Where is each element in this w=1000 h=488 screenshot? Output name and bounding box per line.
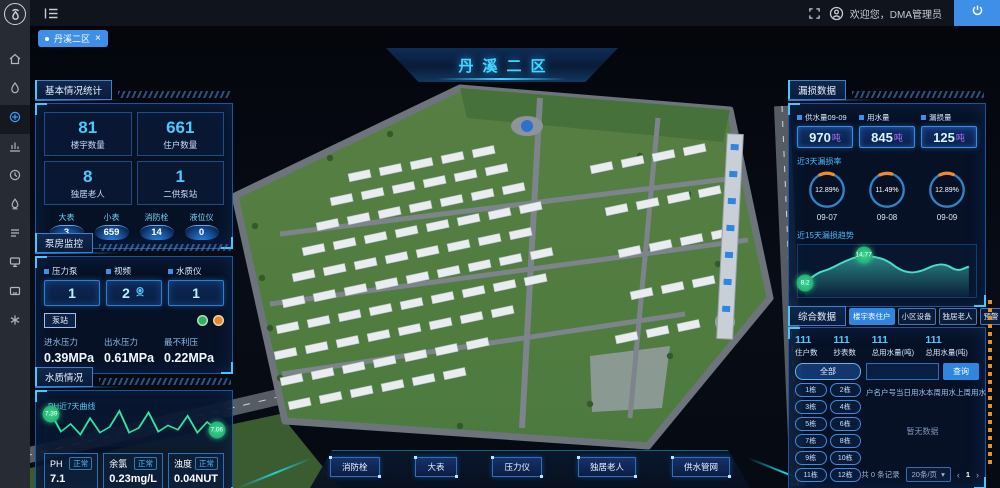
- page-tab[interactable]: 丹溪二区 ×: [38, 30, 108, 47]
- search-input[interactable]: [866, 363, 939, 380]
- sidebar: [0, 0, 30, 488]
- sidebar-item-quality[interactable]: [0, 192, 30, 221]
- record-count: 共 0 条记录: [861, 469, 899, 480]
- leak-rate-gauge: 11.49% 09-08: [857, 169, 917, 222]
- bullet-icon: [797, 115, 802, 120]
- sidebar-item-monitor[interactable]: [0, 250, 30, 279]
- building-button[interactable]: 7栋: [795, 434, 827, 448]
- panel-title: 基本情况统计: [35, 80, 112, 100]
- camera-icon[interactable]: [134, 285, 146, 301]
- bullet-icon: [168, 269, 173, 274]
- scene-3d-viewport[interactable]: 丹溪二区 × 丹溪二区 基本情况统计 81 楼宇数量 661: [30, 26, 1000, 488]
- tab-building-households[interactable]: 楼宇表住户: [849, 308, 895, 325]
- stat-buildings: 81 楼宇数量: [44, 112, 132, 156]
- query-button[interactable]: 查询: [943, 363, 979, 380]
- building-button[interactable]: 3栋: [795, 400, 827, 414]
- ph-marker: 7.06: [208, 421, 225, 438]
- quality-icon: [8, 197, 22, 216]
- hatch-decoration: [118, 91, 231, 98]
- fullscreen-icon[interactable]: [804, 2, 826, 24]
- sidebar-item-tools[interactable]: [0, 308, 30, 337]
- monitor-icon: [8, 255, 22, 274]
- sidebar-item-dashboard[interactable]: [0, 105, 30, 134]
- reading-chlorine: 余氯正常 0.23mg/L: [103, 453, 163, 488]
- station-badge[interactable]: 泵站: [44, 313, 76, 328]
- stat-households: 661 住户数量: [137, 112, 225, 156]
- ph-marker: 7.39: [43, 405, 60, 422]
- supply-volume: 供水量09-09 970吨: [797, 112, 853, 148]
- stat-pump-stations: 1 二供泵站: [137, 161, 225, 205]
- pressure-layer-button[interactable]: 压力仪: [492, 457, 542, 477]
- comp-stat-total-usage-2: 111 总用水量(吨): [925, 334, 979, 358]
- empty-table-text: 暂无数据: [866, 398, 979, 464]
- bullet-icon: [106, 269, 111, 274]
- panel-title: 泵房监控: [35, 233, 93, 253]
- building-button[interactable]: 10栋: [830, 451, 862, 465]
- elderly-layer-button[interactable]: 独居老人: [578, 457, 636, 477]
- building-button[interactable]: 9栋: [795, 451, 827, 465]
- sidebar-item-home[interactable]: [0, 47, 30, 76]
- panel-title: 综合数据: [788, 306, 846, 326]
- panel-comprehensive-data: 综合数据 楼宇表住户 小区设备 独居老人 预警 111 住户数 111 抄表数: [788, 308, 986, 488]
- leak-rate-gauge: 12.89% 09-09: [917, 169, 977, 222]
- sidebar-item-list[interactable]: [0, 221, 30, 250]
- page-size-select[interactable]: 20条/页 ▾: [906, 467, 951, 482]
- caret-down-icon: ▾: [941, 470, 945, 479]
- comp-stat-households: 111 住户数: [795, 334, 833, 358]
- tab-label: 丹溪二区: [54, 32, 90, 45]
- chart-icon: [8, 139, 22, 158]
- large-meter-layer-button[interactable]: 大表: [415, 457, 456, 477]
- bullet-icon: [44, 269, 49, 274]
- next-page-button[interactable]: ›: [976, 470, 979, 480]
- ph-line-chart: PH近7天曲线 7.39 7.06: [44, 399, 224, 447]
- panel-water-quality: 水质情况 PH近7天曲线 7.39 7.06 PH正常 7.1: [35, 369, 233, 488]
- tab-elderly[interactable]: 独居老人: [939, 308, 977, 325]
- brand-water-logo: [4, 3, 26, 25]
- history-icon: [8, 168, 22, 187]
- pipeline-layer-button[interactable]: 供水管网: [672, 457, 730, 477]
- panel-basic-statistics: 基本情况统计 81 楼宇数量 661 住户数量 8 独居老人: [35, 82, 233, 249]
- building-button[interactable]: 2栋: [830, 383, 862, 397]
- device-pressure-pump: 压力泵 1: [44, 265, 100, 306]
- reading-turbidity: 浊度正常 0.04NUT: [168, 453, 224, 488]
- bullet-icon: [921, 115, 926, 120]
- sidebar-item-chart[interactable]: [0, 134, 30, 163]
- leak-trend-chart: 8.2 14.77: [797, 244, 977, 298]
- scrollbar[interactable]: [988, 300, 992, 465]
- filter-all-button[interactable]: 全部: [795, 363, 861, 380]
- panel-title: 水质情况: [35, 367, 93, 387]
- building-button[interactable]: 6栋: [830, 417, 862, 431]
- device-video: 视频 2: [106, 265, 162, 306]
- user-avatar-icon[interactable]: [826, 2, 848, 24]
- leak-volume: 漏损量 125吨: [921, 112, 977, 148]
- panel-title: 漏损数据: [788, 80, 846, 100]
- leak-rate-gauge: 12.89% 09-07: [797, 169, 857, 222]
- building-button[interactable]: 4栋: [830, 400, 862, 414]
- sidebar-item-history[interactable]: [0, 163, 30, 192]
- table-header-row: 户名 户号 当日用水 本周用水 上周用水: [866, 387, 979, 398]
- power-icon: [971, 4, 984, 22]
- top-bar: 欢迎您，DMA管理员: [30, 0, 1000, 26]
- welcome-text: 欢迎您，DMA管理员: [850, 6, 942, 21]
- locate-green-icon[interactable]: [197, 315, 208, 326]
- comp-stat-meters: 111 抄表数: [833, 334, 871, 358]
- current-page: 1: [966, 470, 970, 479]
- home-icon: [8, 52, 22, 71]
- district-title: 丹溪二区: [449, 55, 554, 76]
- tab-dot-icon: [45, 37, 49, 41]
- building-button[interactable]: 8栋: [830, 434, 862, 448]
- tab-community-devices[interactable]: 小区设备: [898, 308, 936, 325]
- dashboard-root: 欢迎您，DMA管理员: [0, 0, 1000, 488]
- inlet-pressure: 进水压力 0.39MPa: [44, 336, 104, 365]
- hatch-decoration: [99, 244, 231, 251]
- sidebar-item-message[interactable]: [0, 279, 30, 308]
- panel-leakage-data: 漏损数据 供水量09-09 970吨 用水量 845吨 漏损量 125吨: [788, 82, 986, 307]
- collapse-menu-icon[interactable]: [40, 2, 62, 24]
- panel-pump-monitoring: 泵房监控 压力泵 1 视频 2: [35, 235, 233, 374]
- hatch-decoration: [852, 91, 984, 98]
- bullet-icon: [859, 115, 864, 120]
- pagination: 共 0 条记录 20条/页 ▾ ‹ 1 ›: [795, 467, 979, 482]
- locate-orange-icon[interactable]: [213, 315, 224, 326]
- gauge-section-title: 近3天漏损率: [797, 156, 977, 167]
- scene-layer-buttons: 消防栓 大表 压力仪 独居老人 供水管网: [330, 457, 730, 477]
- prev-page-button[interactable]: ‹: [957, 470, 960, 480]
- worst-point-pressure: 最不利压 0.22MPa: [164, 336, 224, 365]
- building-button[interactable]: 1栋: [795, 383, 827, 397]
- water-drop-icon: [8, 81, 22, 100]
- tab-close-icon[interactable]: ×: [95, 34, 101, 44]
- tools-icon: [8, 313, 22, 332]
- reading-ph: PH正常 7.1: [44, 453, 98, 488]
- hatch-decoration: [99, 378, 231, 385]
- stat-elderly: 8 独居老人: [44, 161, 132, 205]
- message-icon: [8, 284, 22, 303]
- logout-power-button[interactable]: [954, 0, 1000, 26]
- trend-section-title: 近15天漏损趋势: [797, 230, 977, 241]
- district-title-banner: 丹溪二区: [386, 48, 618, 82]
- outlet-pressure: 出水压力 0.61MPa: [104, 336, 164, 365]
- comp-stat-total-usage: 111 总用水量(吨): [872, 334, 926, 358]
- usage-volume: 用水量 845吨: [859, 112, 915, 148]
- hydrant-layer-button[interactable]: 消防栓: [330, 457, 380, 477]
- device-quality-meter: 水质仪 1: [168, 265, 224, 306]
- trend-marker: 8.2: [797, 274, 814, 291]
- list-icon: [8, 226, 22, 245]
- building-button[interactable]: 5栋: [795, 417, 827, 431]
- trend-marker: 14.77: [855, 247, 872, 264]
- sidebar-item-water[interactable]: [0, 76, 30, 105]
- dashboard-icon: [8, 110, 22, 129]
